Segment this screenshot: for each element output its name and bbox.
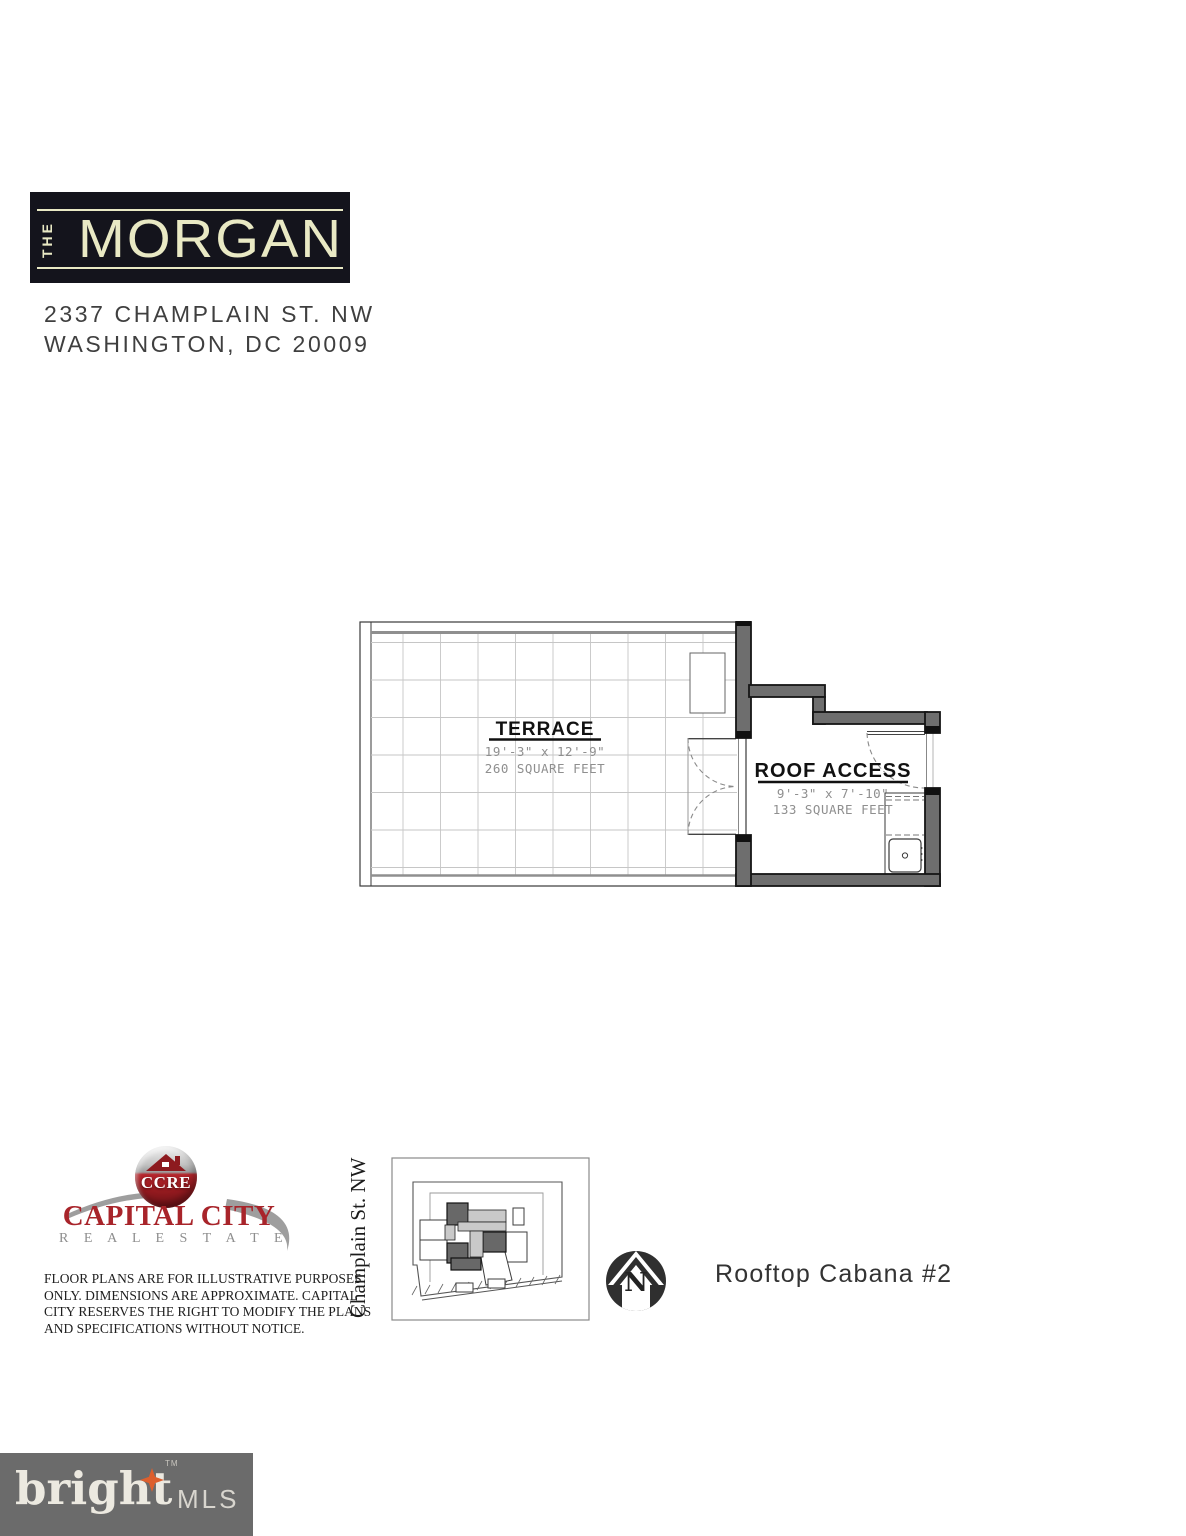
- site-map: [388, 1155, 592, 1323]
- mls-suffix-text: MLS: [177, 1484, 239, 1515]
- floor-plan: TERRACE 19'-3" x 12'-9" 260 SQUARE FEET …: [355, 618, 945, 890]
- compass-letter: N: [624, 1268, 648, 1298]
- street-label: Champlain St. NW: [346, 1152, 378, 1324]
- floor-plan-drawing: TERRACE 19'-3" x 12'-9" 260 SQUARE FEET …: [355, 618, 945, 890]
- bright-mls-logo: bright TM MLS: [0, 1453, 253, 1536]
- flyer-page: THE MORGAN 2337 CHAMPLAIN ST. NW WASHING…: [0, 0, 1186, 1536]
- morgan-logo: THE MORGAN: [30, 192, 350, 283]
- brand-prefix: THE: [39, 215, 61, 265]
- brokerage-subtitle: R E A L E S T A T E: [59, 1231, 287, 1247]
- unit-name: Rooftop Cabana #2: [715, 1260, 952, 1289]
- trademark-symbol: TM: [165, 1459, 179, 1468]
- terrace-area: 260 SQUARE FEET: [485, 761, 605, 776]
- mls-brand-text: bright: [15, 1453, 172, 1525]
- disclaimer-line: CITY RESERVES THE RIGHT TO MODIFY THE PL…: [44, 1304, 374, 1321]
- terrace-dimensions: 19'-3" x 12'-9": [485, 744, 605, 759]
- roof-shaft: [690, 653, 725, 713]
- disclaimer-line: ONLY. DIMENSIONS ARE APPROXIMATE. CAPITA…: [44, 1288, 374, 1305]
- address-line-1: 2337 CHAMPLAIN ST. NW: [44, 299, 375, 329]
- roof-access-label: ROOF ACCESS: [755, 760, 912, 782]
- disclaimer-text: FLOOR PLANS ARE FOR ILLUSTRATIVE PURPOSE…: [44, 1271, 374, 1337]
- address-line-2: WASHINGTON, DC 20009: [44, 329, 375, 359]
- ccre-sphere-icon: CCRE: [135, 1146, 197, 1208]
- north-arrow-icon: N: [604, 1249, 668, 1313]
- chimney-icon: [175, 1156, 180, 1165]
- sink-icon: [889, 839, 921, 872]
- brokerage-name: CAPITAL CITY: [55, 1200, 283, 1233]
- brand-name: MORGAN: [66, 208, 355, 270]
- roof-access-dimensions: 9'-3" x 7'-10": [777, 786, 889, 801]
- roof-access-area: 133 SQUARE FEET: [773, 802, 893, 817]
- window-icon: [161, 1161, 170, 1168]
- ccre-acronym: CCRE: [135, 1173, 197, 1193]
- terrace-label: TERRACE: [496, 719, 595, 740]
- property-address: 2337 CHAMPLAIN ST. NW WASHINGTON, DC 200…: [44, 299, 375, 359]
- capital-city-logo: CCRE CAPITAL CITY R E A L E S T A T E: [55, 1143, 305, 1273]
- disclaimer-line: FLOOR PLANS ARE FOR ILLUSTRATIVE PURPOSE…: [44, 1271, 374, 1288]
- disclaimer-line: AND SPECIFICATIONS WITHOUT NOTICE.: [44, 1321, 374, 1338]
